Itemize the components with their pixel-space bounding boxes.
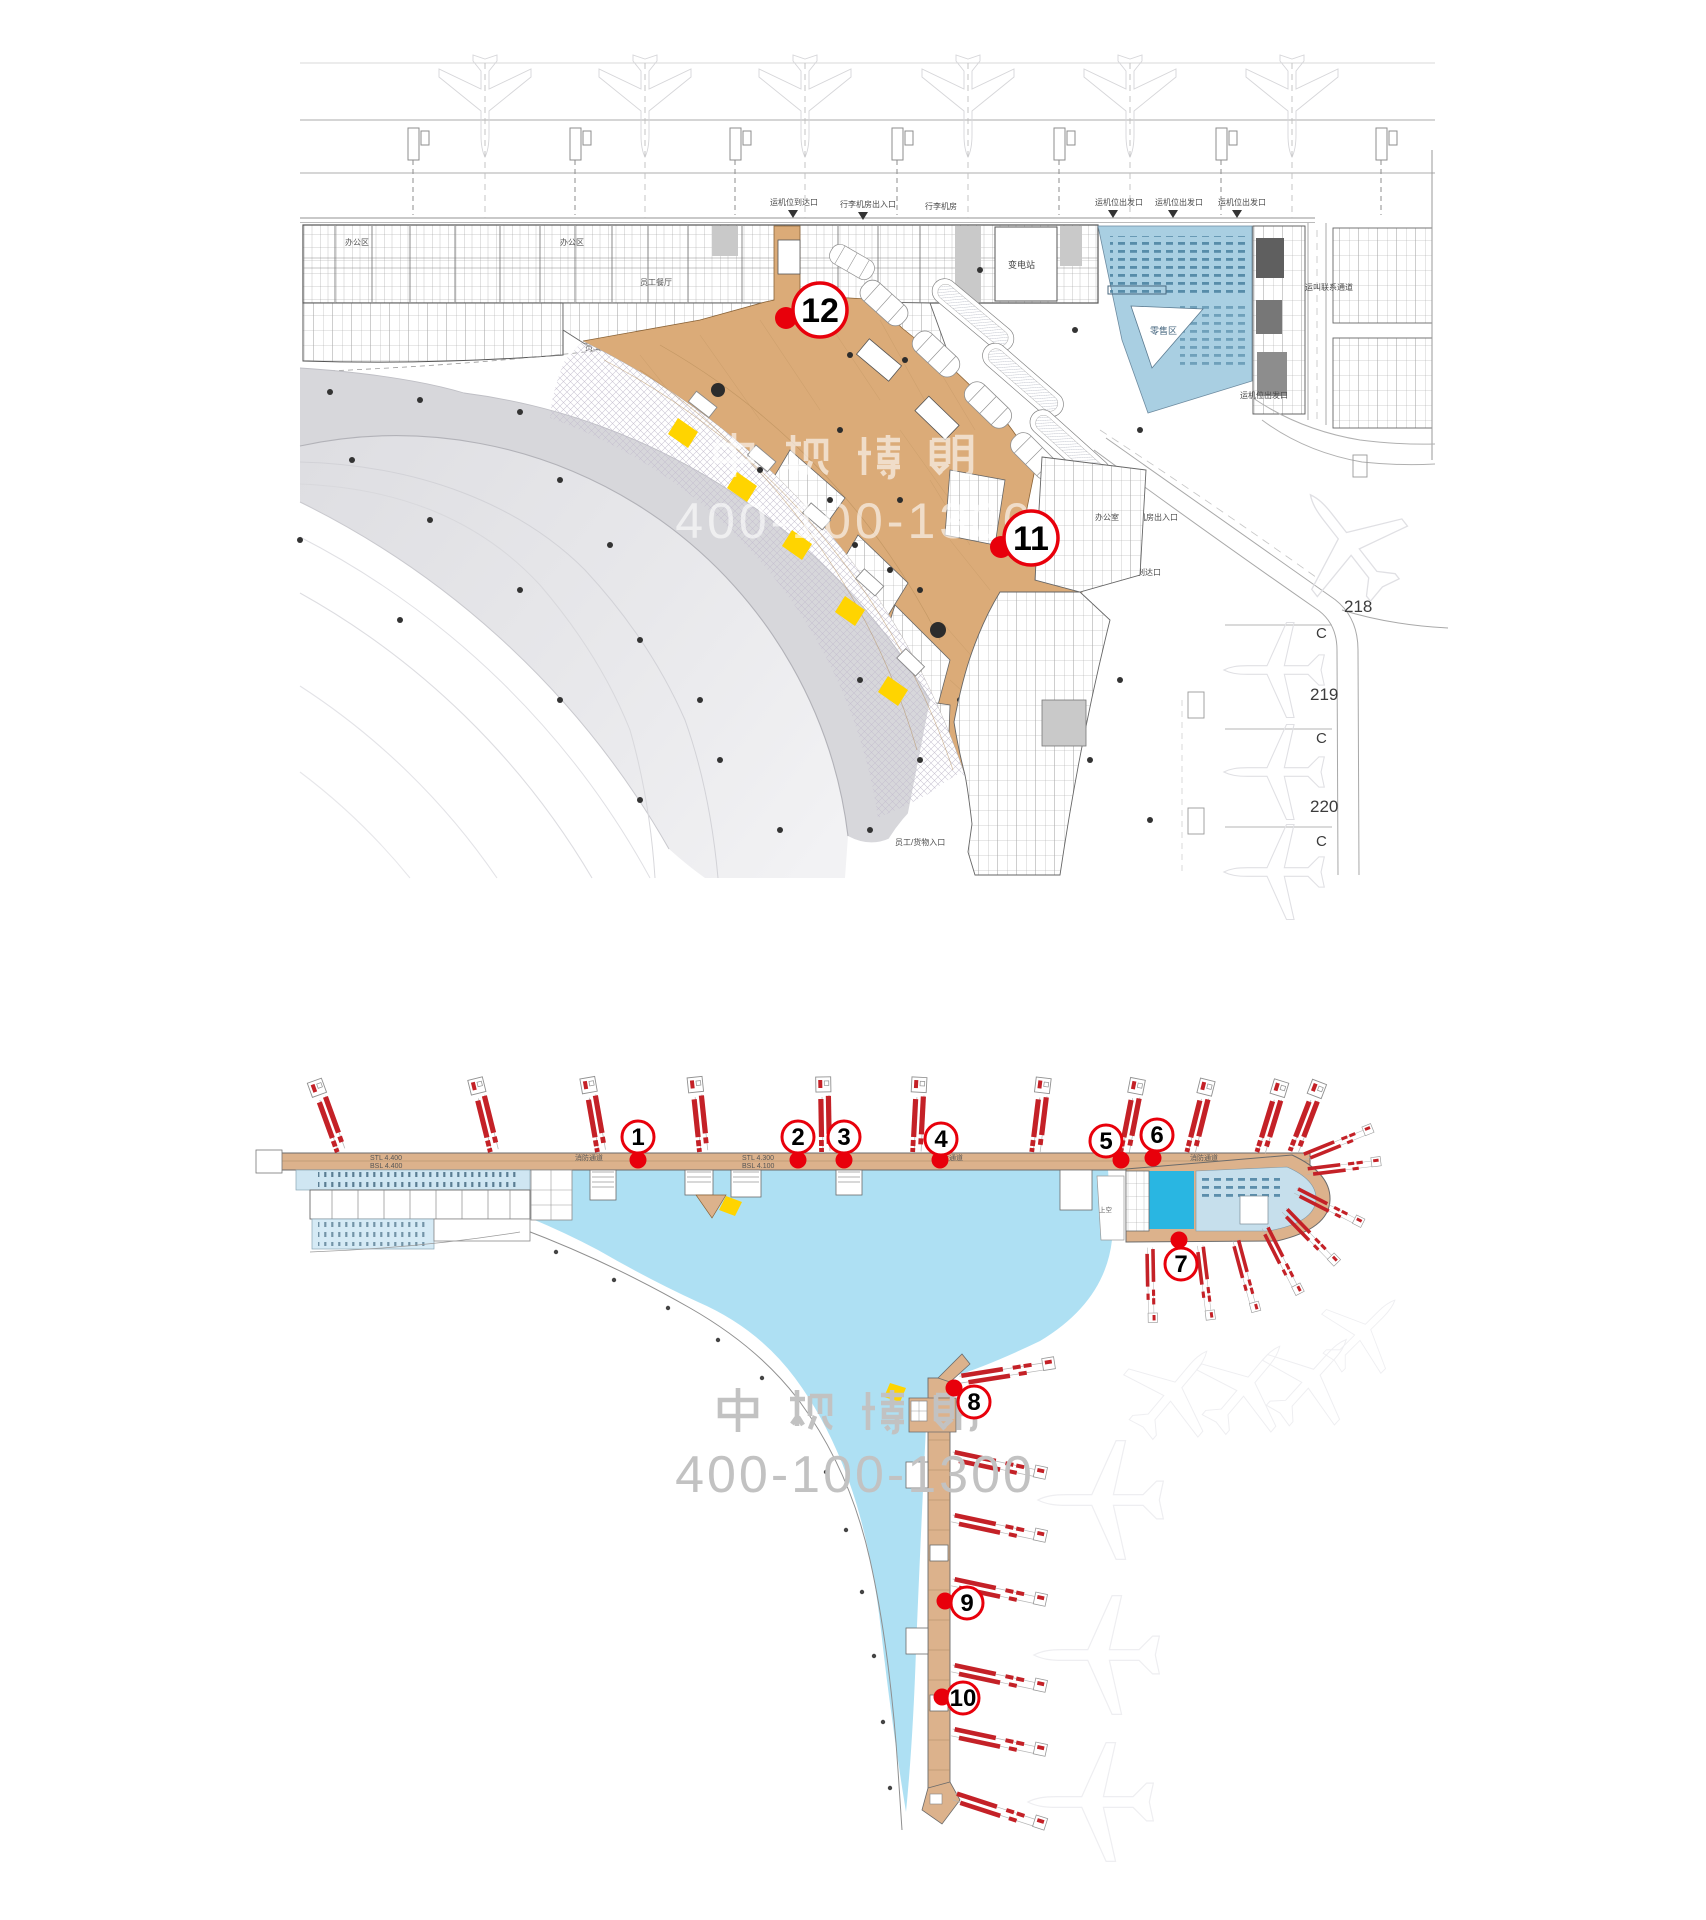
svg-text:10: 10: [950, 1685, 977, 1712]
svg-text:员工餐厅: 员工餐厅: [640, 278, 672, 287]
svg-text:变电站: 变电站: [1008, 259, 1035, 270]
svg-text:运机位出发口: 运机位出发口: [1095, 197, 1143, 207]
svg-text:STL 4.400: STL 4.400: [370, 1155, 402, 1162]
svg-text:6: 6: [1150, 1122, 1163, 1149]
svg-text:行李机房出入口: 行李机房出入口: [840, 199, 896, 209]
svg-text:运机位出发口: 运机位出发口: [1218, 197, 1266, 207]
svg-text:办公区: 办公区: [560, 237, 584, 247]
svg-text:员工/货物入口: 员工/货物入口: [895, 837, 945, 847]
svg-text:零售区: 零售区: [1150, 325, 1177, 336]
svg-text:1: 1: [631, 1124, 644, 1151]
svg-text:运叫联系通道: 运叫联系通道: [1305, 282, 1353, 292]
svg-text:4: 4: [934, 1126, 948, 1153]
svg-text:C: C: [1316, 730, 1327, 747]
svg-text:7: 7: [1174, 1251, 1187, 1278]
svg-text:运机位出发口: 运机位出发口: [1240, 390, 1288, 400]
svg-text:BSL 4.400: BSL 4.400: [370, 1163, 403, 1170]
svg-text:消防通道: 消防通道: [575, 1153, 603, 1162]
svg-text:219: 219: [1310, 685, 1338, 704]
svg-text:消防通道: 消防通道: [1190, 1153, 1218, 1162]
svg-text:3: 3: [837, 1124, 850, 1151]
svg-text:400-100-1300: 400-100-1300: [675, 1446, 1035, 1504]
svg-text:STL 4.300: STL 4.300: [742, 1155, 774, 1162]
svg-text:400-100-1300: 400-100-1300: [675, 493, 1034, 549]
svg-text:C: C: [1316, 833, 1327, 850]
svg-text:BSL 4.100: BSL 4.100: [742, 1163, 775, 1170]
svg-text:9: 9: [960, 1590, 973, 1617]
svg-text:220: 220: [1310, 797, 1338, 816]
svg-text:12: 12: [801, 292, 839, 330]
svg-text:11: 11: [1013, 520, 1049, 558]
svg-text:上空: 上空: [1099, 1205, 1113, 1214]
svg-text:办公室: 办公室: [1095, 512, 1119, 522]
svg-text:办公区: 办公区: [345, 237, 369, 247]
svg-text:运机位到达口: 运机位到达口: [770, 197, 818, 207]
svg-text:运机位出发口: 运机位出发口: [1155, 197, 1203, 207]
svg-text:218: 218: [1344, 597, 1372, 616]
svg-text:2: 2: [791, 1124, 804, 1151]
svg-text:5: 5: [1099, 1128, 1112, 1155]
svg-text:C: C: [1316, 625, 1327, 642]
svg-text:8: 8: [967, 1389, 980, 1416]
svg-text:行李机房: 行李机房: [925, 201, 957, 211]
